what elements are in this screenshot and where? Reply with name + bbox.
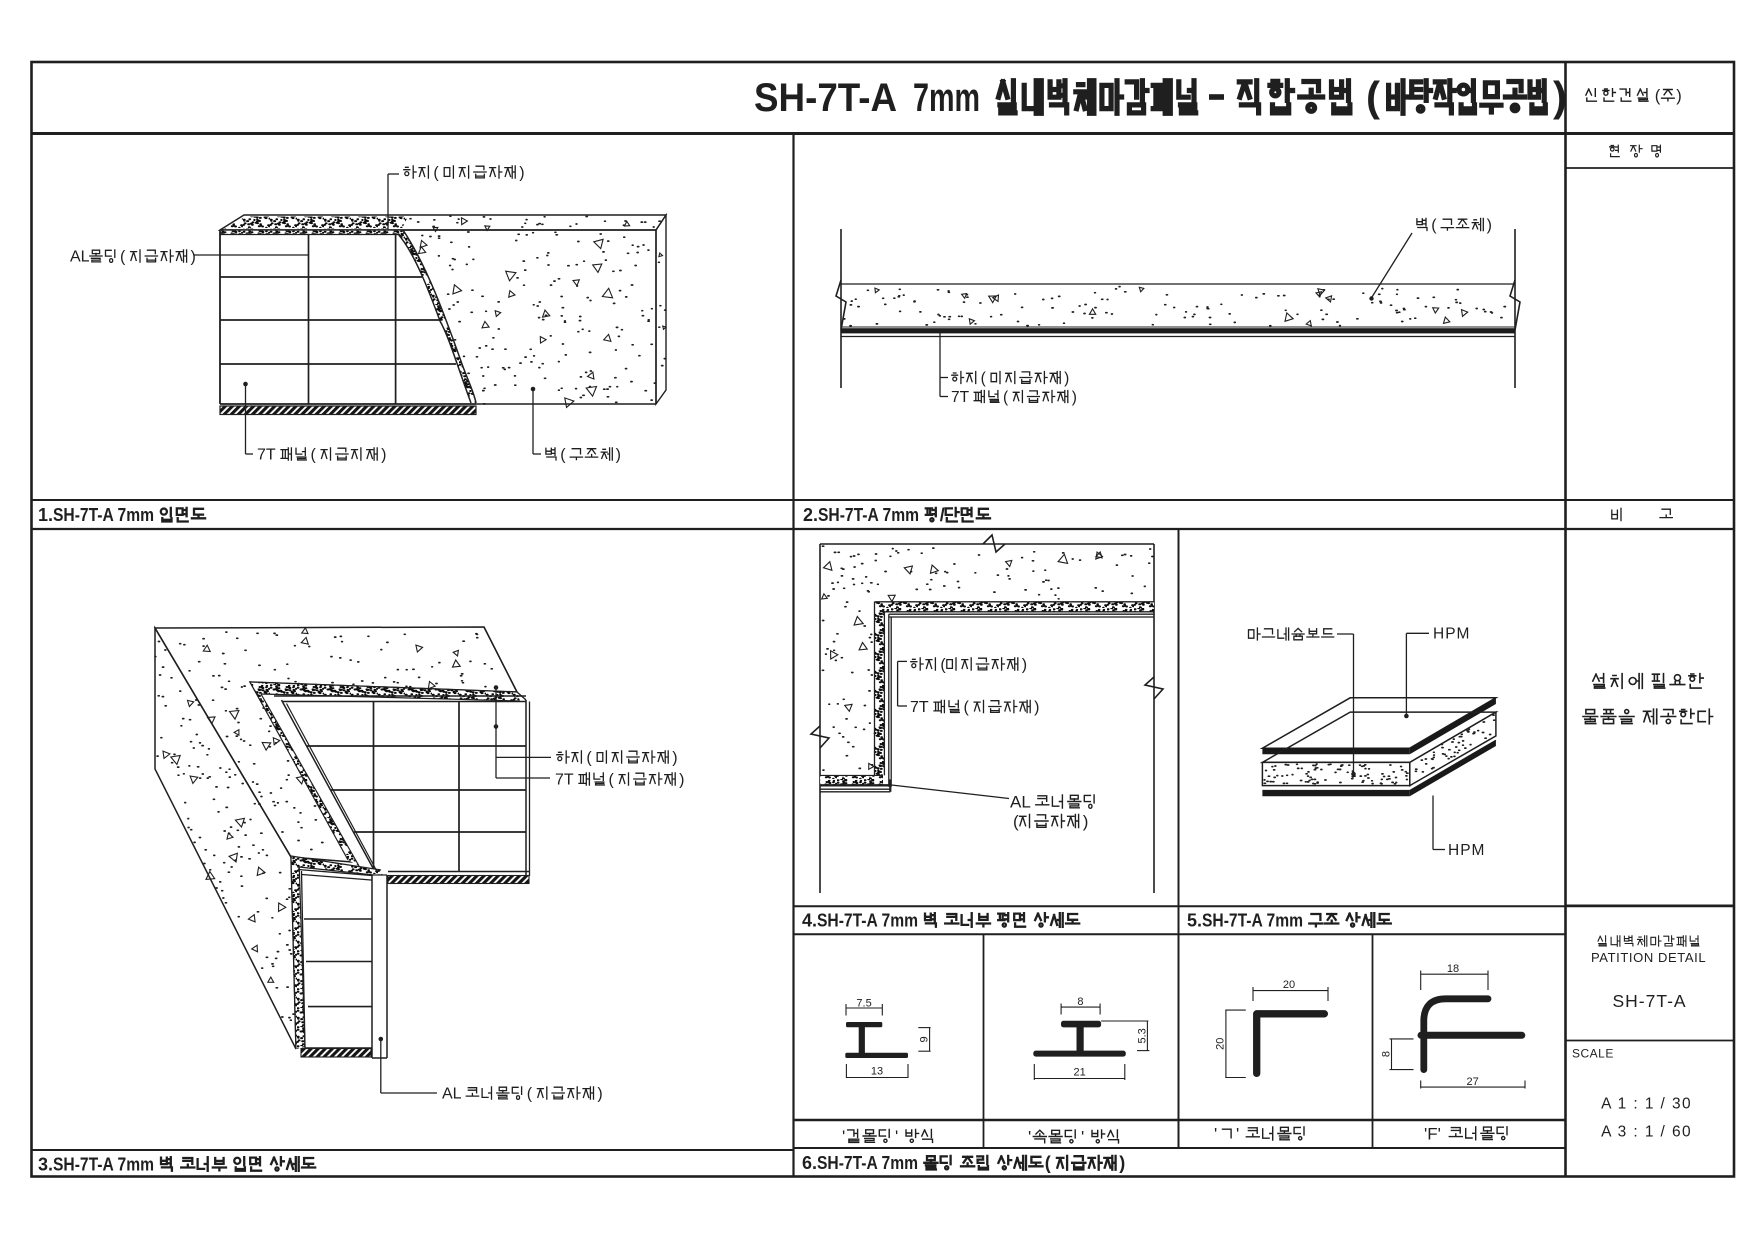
svg-text:SH-7T-A 7mm: SH-7T-A 7mm xyxy=(53,1154,154,1174)
svg-text:(: ( xyxy=(1003,389,1009,406)
svg-text:SH-7T-A: SH-7T-A xyxy=(1613,991,1687,1011)
svg-text:): ) xyxy=(1083,812,1089,831)
svg-text:(: ( xyxy=(1431,217,1437,234)
svg-text:(: ( xyxy=(1366,73,1380,120)
svg-text:(: ( xyxy=(1045,1153,1051,1173)
svg-text:AL: AL xyxy=(1010,793,1031,812)
svg-text:A 1 : 1 / 30: A 1 : 1 / 30 xyxy=(1601,1096,1692,1113)
svg-text:8: 8 xyxy=(1380,1051,1392,1057)
svg-text:A 3 : 1 / 60: A 3 : 1 / 60 xyxy=(1601,1124,1692,1141)
svg-text:(: ( xyxy=(964,699,970,716)
svg-text:SH-7T-A 7mm: SH-7T-A 7mm xyxy=(53,505,154,525)
svg-text:': ' xyxy=(1214,1125,1217,1144)
svg-text:20: 20 xyxy=(1283,979,1295,991)
svg-text:6.: 6. xyxy=(802,1153,817,1173)
svg-text:(: ( xyxy=(586,750,592,767)
svg-text:20: 20 xyxy=(1214,1038,1226,1050)
svg-text:HPM: HPM xyxy=(1433,626,1470,643)
svg-text:4.: 4. xyxy=(802,910,817,930)
svg-text:): ) xyxy=(1553,73,1567,120)
svg-text:): ) xyxy=(616,447,621,464)
svg-text:AL: AL xyxy=(70,249,90,266)
svg-text:3.: 3. xyxy=(38,1154,53,1174)
svg-text:): ) xyxy=(597,1086,602,1103)
svg-text:(: ( xyxy=(433,165,439,182)
svg-text:SH-7T-A 7mm: SH-7T-A 7mm xyxy=(817,1153,918,1173)
svg-text:): ) xyxy=(1034,699,1039,716)
svg-text:(: ( xyxy=(560,447,566,464)
svg-text:): ) xyxy=(381,447,386,464)
svg-text:SH-7T-A: SH-7T-A xyxy=(754,76,897,120)
svg-text:): ) xyxy=(672,750,677,767)
svg-text:(: ( xyxy=(981,370,987,387)
svg-text:18: 18 xyxy=(1447,963,1459,975)
svg-text:'F': 'F' xyxy=(1424,1124,1441,1143)
svg-text:2.: 2. xyxy=(803,505,818,525)
svg-text:): ) xyxy=(1119,1153,1125,1173)
svg-text:': ' xyxy=(1028,1128,1031,1147)
svg-text:(: ( xyxy=(311,447,317,464)
svg-text:7T: 7T xyxy=(951,389,970,406)
svg-text:(: ( xyxy=(940,657,946,674)
svg-text:(: ( xyxy=(120,249,126,266)
svg-text:(: ( xyxy=(527,1086,533,1103)
svg-text:1.: 1. xyxy=(38,505,53,525)
svg-text:SH-7T-A 7mm: SH-7T-A 7mm xyxy=(1202,910,1303,930)
svg-text:5.3: 5.3 xyxy=(1136,1028,1148,1043)
svg-text:(: ( xyxy=(609,772,615,789)
svg-text:7T: 7T xyxy=(257,447,276,464)
svg-text:HPM: HPM xyxy=(1448,842,1485,859)
svg-text:7T: 7T xyxy=(555,772,574,789)
svg-text:5.: 5. xyxy=(1187,910,1202,930)
svg-text:/: / xyxy=(940,505,945,525)
svg-text:8: 8 xyxy=(1077,996,1083,1008)
svg-text:): ) xyxy=(1022,657,1027,674)
svg-text:AL: AL xyxy=(442,1086,462,1103)
svg-text:): ) xyxy=(1676,87,1682,105)
svg-text:): ) xyxy=(1487,217,1492,234)
svg-text:SH-7T-A 7mm: SH-7T-A 7mm xyxy=(818,505,919,525)
svg-text:21: 21 xyxy=(1074,1066,1086,1078)
svg-text:): ) xyxy=(519,165,524,182)
svg-text:(: ( xyxy=(1013,812,1019,831)
svg-text:): ) xyxy=(1072,389,1077,406)
svg-text:13: 13 xyxy=(871,1065,883,1077)
svg-text:(: ( xyxy=(1655,87,1661,105)
svg-text:): ) xyxy=(1064,370,1069,387)
svg-text:': ' xyxy=(1236,1125,1239,1144)
svg-text:': ' xyxy=(1081,1128,1084,1147)
svg-text:SH-7T-A 7mm: SH-7T-A 7mm xyxy=(817,910,918,930)
svg-text:7T: 7T xyxy=(910,699,929,716)
svg-text:': ' xyxy=(842,1127,845,1146)
svg-text:9: 9 xyxy=(918,1036,930,1042)
svg-text:SCALE: SCALE xyxy=(1572,1047,1614,1061)
svg-text:PATITION DETAIL: PATITION DETAIL xyxy=(1591,950,1706,965)
svg-text:): ) xyxy=(679,772,684,789)
svg-text:7mm: 7mm xyxy=(913,76,980,120)
svg-text:27: 27 xyxy=(1467,1076,1479,1088)
svg-text:): ) xyxy=(191,249,196,266)
svg-text:7.5: 7.5 xyxy=(856,997,871,1009)
svg-text:': ' xyxy=(895,1127,898,1146)
